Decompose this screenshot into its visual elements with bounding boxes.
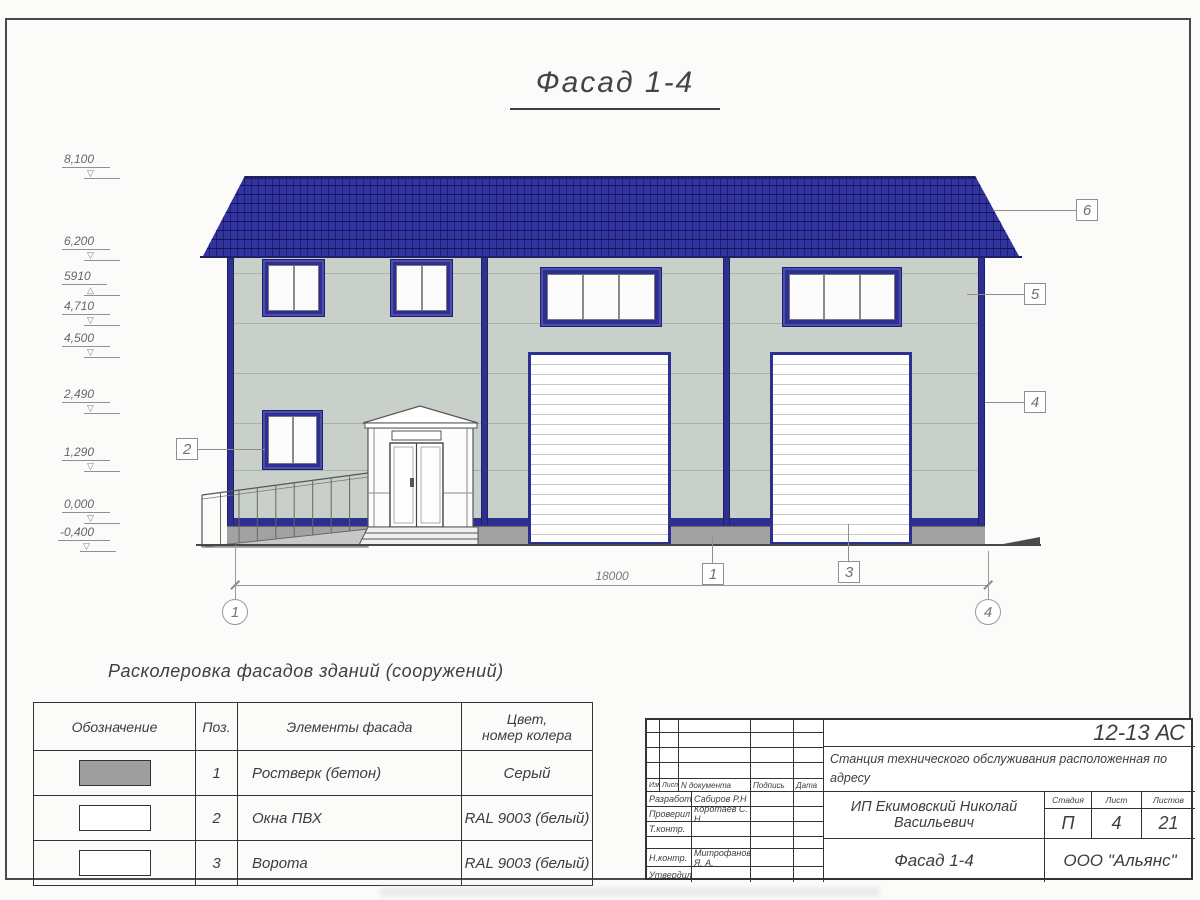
page-title: Фасад 1-4 (510, 66, 720, 110)
leader-line (198, 449, 265, 450)
level-arrow-icon: ▽ (84, 315, 120, 326)
legend-table: Обозначение Поз. Элементы фасада Цвет, н… (33, 702, 593, 886)
roof-shingles (195, 176, 1025, 258)
leader-line (848, 524, 849, 563)
role-name (692, 867, 751, 882)
pilaster (723, 255, 730, 525)
window-upper-left-2 (390, 259, 453, 317)
level-value: 6,200 (62, 235, 110, 250)
row-pos: 3 (196, 841, 238, 886)
callout-6: 6 (1076, 199, 1098, 221)
row-element: Ростверк (бетон) (238, 751, 462, 796)
callout-4: 4 (1024, 391, 1046, 413)
sheets-total: 21 (1142, 809, 1195, 839)
document-code: 12-13 АС (824, 720, 1195, 747)
level-value: 5910 (62, 270, 107, 285)
role-name (692, 837, 751, 849)
entrance-porch-and-ramp (195, 398, 485, 550)
callout-3: 3 (838, 561, 860, 583)
role-name: Коротаев С. Н. (692, 807, 751, 822)
head-sign: Подпись (751, 779, 794, 792)
level-arrow-icon: ▽ (84, 513, 120, 524)
level-value: -0,400 (58, 526, 110, 541)
stage-label: Стадия (1045, 792, 1092, 809)
head-date: Дата (794, 779, 824, 792)
leader-line (993, 210, 1077, 211)
level-arrow-icon: ▽ (84, 403, 120, 414)
garage-door-2 (770, 352, 912, 545)
row-pos: 1 (196, 751, 238, 796)
axis-bubble-1: 1 (222, 599, 248, 625)
window-bay-2 (782, 267, 902, 327)
scan-noise (380, 888, 880, 896)
swatch-gray (79, 760, 151, 786)
legend-row: 3 Ворота RAL 9003 (белый) (34, 841, 593, 886)
swatch-white (79, 850, 151, 876)
role-name (692, 822, 751, 837)
leader-line (967, 294, 1025, 295)
role-label: Т.контр. (647, 822, 692, 837)
title-block: Изм. Лист N документа Подпись Дата Разра… (645, 718, 1193, 880)
level-mark: 4,710 ▽ (62, 300, 120, 326)
project-line1: Станция технического обслуживания распол… (830, 750, 1189, 789)
level-arrow-icon: △ (84, 285, 120, 296)
drawing-title: Фасад 1-4 (824, 839, 1045, 882)
axis-line-4 (988, 551, 989, 599)
corner-pilaster-right (978, 255, 985, 525)
row-color: Серый (462, 751, 593, 796)
sheets-label: Листов (1142, 792, 1195, 809)
col-color: Цвет, номер колера (462, 703, 593, 751)
role-label: Проверил (647, 807, 692, 822)
col-pos: Поз. (196, 703, 238, 751)
drawing-sheet: Фасад 1-4 8,100 ▽ 6,200 ▽ 5910 △ 4,710 ▽… (0, 0, 1200, 900)
level-value: 4,500 (62, 332, 110, 347)
role-label: Н.контр. (647, 849, 692, 867)
level-arrow-icon: ▽ (84, 250, 120, 261)
axis-line-1 (235, 545, 236, 599)
level-arrow-icon: ▽ (84, 461, 120, 472)
row-pos: 2 (196, 796, 238, 841)
ground-line (196, 544, 1041, 546)
callout-1: 1 (702, 563, 724, 585)
level-value: 4,710 (62, 300, 110, 315)
level-value: 8,100 (62, 153, 110, 168)
level-arrow-icon: ▽ (84, 347, 120, 358)
role-name: Митрофанов Я. А. (692, 849, 751, 867)
row-element: Окна ПВХ (238, 796, 462, 841)
organization-name: ООО "Альянс" (1045, 839, 1195, 882)
leader-line (712, 537, 713, 565)
level-arrow-icon: ▽ (80, 541, 116, 552)
level-value: 2,490 (62, 388, 110, 403)
role-label: Утвердил (647, 867, 692, 882)
dimension-line (235, 585, 988, 586)
level-mark: 6,200 ▽ (62, 235, 120, 261)
legend-row: 2 Окна ПВХ RAL 9003 (белый) (34, 796, 593, 841)
window-bay-1 (540, 267, 662, 327)
level-mark: 1,290 ▽ (62, 446, 120, 472)
callout-2: 2 (176, 438, 198, 460)
level-mark: 4,500 ▽ (62, 332, 120, 358)
level-mark: -0,400 ▽ (58, 526, 116, 552)
role-name: Сабиров Р.Н (692, 792, 751, 807)
swatch-white (79, 805, 151, 831)
callout-5: 5 (1024, 283, 1046, 305)
col-designation: Обозначение (34, 703, 196, 751)
row-color: RAL 9003 (белый) (462, 796, 593, 841)
legend-heading: Расколеровка фасадов зданий (сооружений) (108, 661, 504, 682)
head-list: Лист (660, 779, 679, 792)
stage-value: П (1045, 809, 1092, 839)
level-arrow-icon: ▽ (84, 168, 120, 179)
row-color: RAL 9003 (белый) (462, 841, 593, 886)
leader-line (985, 402, 1025, 403)
col-element: Элементы фасада (238, 703, 462, 751)
level-mark: 0,000 ▽ (62, 498, 120, 524)
level-mark: 8,100 ▽ (62, 153, 120, 179)
eaves-line (200, 256, 1022, 258)
level-mark: 2,490 ▽ (62, 388, 120, 414)
window-upper-left-1 (262, 259, 325, 317)
head-ndoc: N документа (679, 779, 751, 792)
client-name: ИП Екимовский Николай Васильевич (824, 792, 1045, 839)
head-izm: Изм. (647, 779, 660, 792)
level-value: 1,290 (62, 446, 110, 461)
row-element: Ворота (238, 841, 462, 886)
sheet-number: 4 (1092, 809, 1142, 839)
dimension-value: 18000 (560, 569, 664, 583)
project-description: Станция технического обслуживания распол… (824, 747, 1195, 792)
sheet-label: Лист (1092, 792, 1142, 809)
role-label (647, 837, 692, 849)
legend-row: 1 Ростверк (бетон) Серый (34, 751, 593, 796)
level-mark: 5910 △ (62, 270, 120, 296)
legend-header-row: Обозначение Поз. Элементы фасада Цвет, н… (34, 703, 593, 751)
garage-door-1 (528, 352, 671, 545)
level-value: 0,000 (62, 498, 110, 513)
role-label: Разработал (647, 792, 692, 807)
axis-bubble-4: 4 (975, 599, 1001, 625)
